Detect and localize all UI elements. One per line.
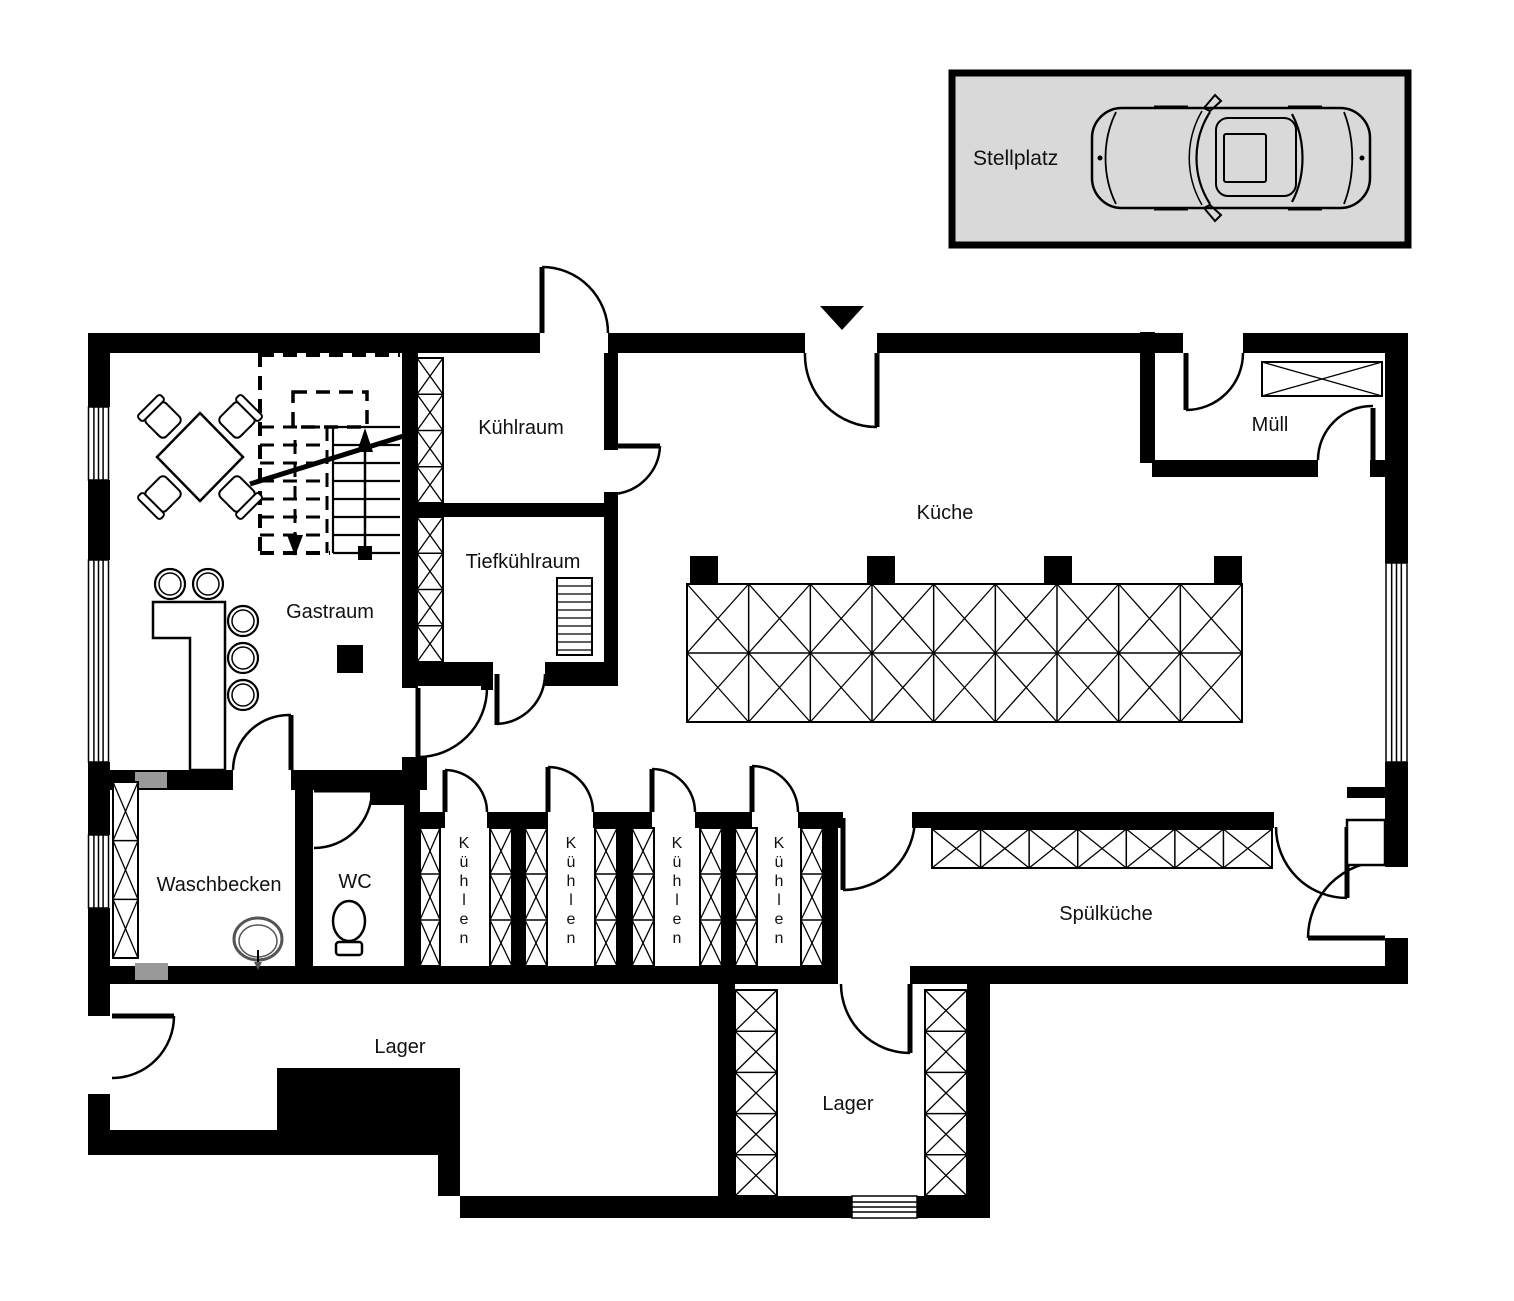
entrance-arrow-icon — [820, 306, 864, 330]
cell-label-kuehlen-1: Kühlen — [459, 835, 470, 947]
cell-label-kuehlen-3: Kühlen — [672, 835, 683, 947]
toilet — [333, 901, 365, 955]
cell-label-kuehlen-4: Kühlen — [774, 835, 785, 947]
room-label-lager-left: Lager — [374, 1036, 425, 1058]
kitchen-island — [687, 584, 1242, 722]
room-label-spuelkueche: Spülküche — [1059, 903, 1152, 925]
staircase — [250, 353, 410, 560]
chair — [216, 394, 263, 441]
room-label-wc: WC — [338, 871, 371, 893]
chair — [137, 394, 184, 441]
floor-plan: Stellplatz Kühlraum Tiefkühlraum Gastrau… — [0, 0, 1514, 1301]
chair — [137, 473, 184, 520]
room-label-kueche: Küche — [917, 502, 974, 524]
floor-plan-page: Stellplatz Kühlraum Tiefkühlraum Gastrau… — [0, 0, 1514, 1301]
room-label-lager-right: Lager — [822, 1093, 873, 1115]
parking-label: Stellplatz — [973, 147, 1058, 170]
cell-label-kuehlen-2: Kühlen — [566, 835, 577, 947]
room-label-muell: Müll — [1252, 414, 1289, 436]
bar-counter — [153, 602, 225, 770]
room-label-tiefkuehlraum: Tiefkühlraum — [466, 551, 581, 573]
room-label-gastraum: Gastraum — [286, 601, 374, 623]
room-label-waschbecken: Waschbecken — [157, 874, 282, 896]
freezer-shelf — [557, 578, 592, 655]
sink — [234, 918, 282, 970]
room-label-kuehlraum: Kühlraum — [478, 417, 564, 439]
